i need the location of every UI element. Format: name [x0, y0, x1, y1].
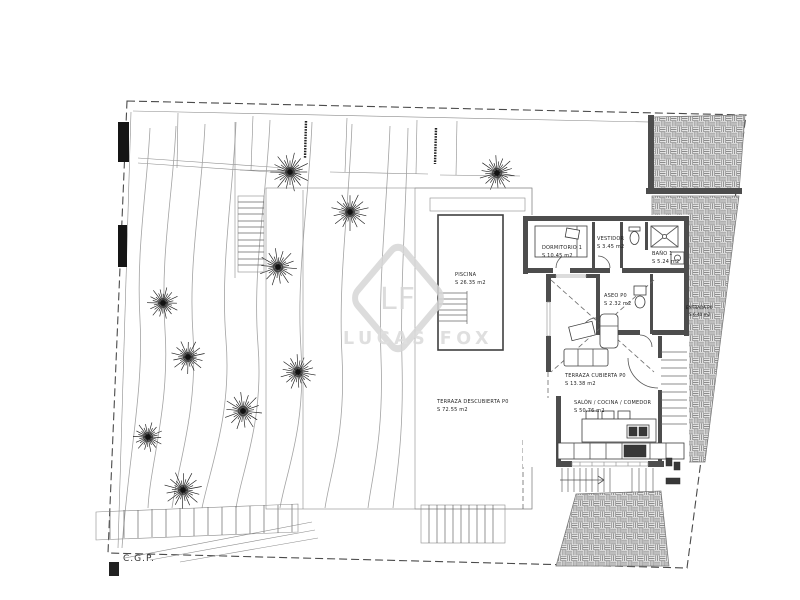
room-label-terraza-descubierta: TERRAZA DESCUBIERTA P0 [436, 399, 509, 405]
paving-hatch-bottom [556, 491, 669, 566]
room-area-piscina: S 26.35 m2 [455, 280, 486, 286]
site-plan-page: PISCINA S 26.35 m2 [0, 0, 800, 600]
room-area-entrada: S 6.40 m2 [689, 312, 711, 317]
room-label-entrada: ENTRADA P0 [686, 305, 713, 310]
paving-hatch-top [652, 115, 745, 192]
utility-box [118, 122, 129, 162]
tree-symbol [147, 288, 178, 319]
shower [651, 226, 678, 247]
boundary-annotation [305, 121, 306, 158]
room-area-vestidor: S 3.45 m2 [597, 244, 624, 250]
deck-terrace: PISCINA S 26.35 m2 [266, 188, 532, 543]
kitchen-counter [558, 443, 684, 459]
cgp-marker: C.G.P. [109, 554, 155, 576]
room-label-salon: SALÓN / COCINA / COMEDOR [574, 399, 652, 406]
tree-symbol [172, 342, 205, 375]
tree-symbol [480, 155, 515, 189]
room-area-terraza-cubierta: S 13.38 m2 [565, 381, 596, 387]
room-area-terraza-descubierta: S 72.55 m2 [437, 407, 468, 413]
tree-symbol [332, 195, 369, 231]
tree-symbol [133, 423, 162, 452]
room-label-piscina: PISCINA [455, 272, 477, 278]
deck-steps [421, 505, 505, 543]
left-staircase [235, 122, 264, 278]
tree-symbol [281, 354, 316, 388]
sofa [564, 349, 608, 366]
cgp-label: C.G.P. [123, 554, 155, 564]
toilet [629, 227, 640, 245]
room-label-terraza-cubierta: TERRAZA CUBIERTA P0 [564, 373, 626, 379]
watermark-brand: LUCAS FOX [343, 329, 493, 349]
room-label-dormitorio1: DORMITORIO 1 [542, 245, 582, 251]
room-label-bano1: BAÑO 1 [652, 250, 673, 257]
lounge-chair [600, 314, 618, 348]
room-area-bano1: S 5.24 m2 [652, 259, 679, 265]
floor-plan-drawing: PISCINA S 26.35 m2 [0, 0, 800, 600]
utility-box [118, 225, 127, 267]
room-area-salon: S 50.76 m2 [574, 408, 605, 414]
tree-symbol [270, 153, 308, 191]
watermark-monogram: LF [380, 282, 416, 317]
boundary-annotation [435, 128, 436, 164]
room-area-dormitorio1: S 10.45 m2 [542, 253, 573, 259]
room-area-aseo: S 2.32 m2 [604, 301, 631, 307]
room-label-aseo: ASEO P0 [604, 293, 627, 299]
tree-symbol [165, 473, 202, 509]
room-label-vestidor: VESTIDOR [597, 236, 624, 242]
